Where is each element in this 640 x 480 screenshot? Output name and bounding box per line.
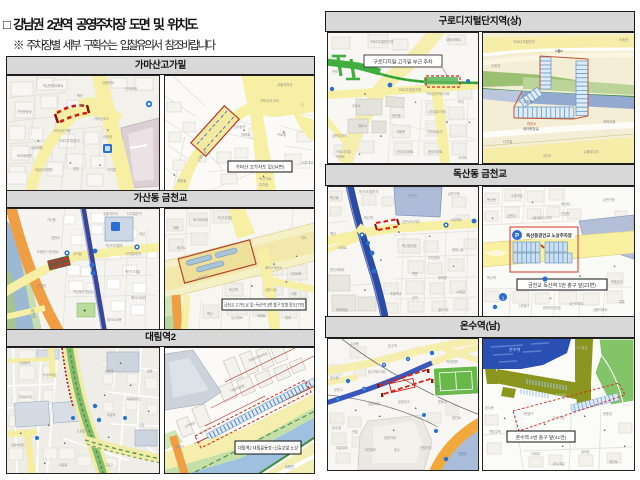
svg-text:주민센터: 주민센터: [428, 255, 440, 260]
svg-text:에이스타워: 에이스타워: [131, 295, 146, 300]
svg-text:그린빌라: 그린빌라: [364, 447, 376, 452]
svg-text:대흥빌라: 대흥빌라: [336, 445, 348, 450]
svg-text:▲: ▲: [583, 414, 586, 418]
svg-text:온수역사거리: 온수역사거리: [368, 369, 386, 374]
svg-text:부천시: 부천시: [334, 387, 343, 392]
svg-text:1: 1: [502, 295, 505, 300]
svg-text:▲: ▲: [129, 383, 132, 387]
svg-text:독산역: 독산역: [229, 287, 238, 292]
svg-text:아파트: 아파트: [338, 245, 347, 250]
svg-text:우성아파트: 우성아파트: [43, 372, 57, 377]
svg-text:■: ■: [380, 258, 382, 262]
svg-text:■: ■: [446, 120, 448, 124]
svg-text:안양천: 안양천: [37, 283, 46, 288]
svg-text:▲: ▲: [623, 444, 626, 448]
svg-text:보성: 보성: [458, 99, 464, 104]
svg-text:하안동: 하안동: [392, 113, 401, 118]
svg-text:구로디지털: 구로디지털: [336, 149, 351, 154]
svg-text:▲: ▲: [414, 406, 417, 410]
svg-text:▲: ▲: [43, 461, 46, 465]
svg-text:독산교: 독산교: [561, 201, 570, 206]
svg-text:수출의다리: 수출의다리: [103, 211, 118, 216]
svg-text:금천교: 금천교: [507, 213, 516, 218]
svg-text:구로디지털단지역: 구로디지털단지역: [370, 39, 394, 44]
svg-text:현대아파트: 현대아파트: [19, 394, 33, 399]
svg-text:신림현대: 신림현대: [102, 80, 114, 85]
svg-text:금천우체국: 금천우체국: [332, 133, 347, 138]
svg-text:벽산: 벽산: [330, 231, 336, 236]
svg-text:가마산오거리: 가마산오거리: [260, 98, 279, 103]
svg-text:▲: ▲: [531, 200, 534, 204]
svg-text:시흥대로사거리: 시흥대로사거리: [531, 215, 552, 220]
svg-text:온수역전: 온수역전: [553, 415, 565, 420]
svg-text:1번출구: 1번출구: [519, 303, 530, 308]
svg-text:도림천: 도림천: [77, 428, 86, 433]
svg-text:▲: ▲: [428, 234, 431, 238]
svg-text:서울가마산: 서울가마산: [277, 82, 293, 87]
svg-text:금천교 독산역 1번 출구 앞(21면): 금천교 독산역 1번 출구 앞(21면): [528, 282, 596, 289]
svg-text:▲: ▲: [491, 216, 494, 220]
svg-text:두산위브: 두산위브: [231, 315, 243, 320]
svg-text:▲: ▲: [452, 264, 455, 268]
svg-text:테크노타운: 테크노타운: [107, 317, 122, 322]
svg-text:성당: 성당: [73, 166, 79, 171]
svg-text:아울렛: 아울렛: [396, 129, 405, 134]
svg-text:✚: ✚: [285, 280, 288, 284]
svg-text:아파트: 아파트: [241, 132, 250, 137]
svg-text:▲: ▲: [47, 423, 50, 427]
svg-text:초등학교: 초등학교: [390, 291, 402, 296]
svg-text:대성: 대성: [139, 231, 145, 236]
svg-text:▲: ▲: [107, 435, 110, 439]
svg-text:▲: ▲: [63, 441, 66, 445]
svg-text:대림동: 대림동: [177, 178, 186, 183]
svg-text:구민운동장: 구민운동장: [17, 109, 32, 114]
svg-text:마을금고: 마을금고: [611, 279, 623, 284]
svg-text:■: ■: [283, 130, 285, 134]
svg-text:수출의다리: 수출의다리: [583, 149, 599, 154]
svg-text:구로디지털 고가밑 부근 주차: 구로디지털 고가밑 부근 주차: [373, 59, 433, 66]
svg-text:도림천: 도림천: [285, 464, 294, 469]
svg-text:빌라촌: 빌라촌: [581, 449, 590, 454]
svg-text:체육공원: 체육공원: [603, 119, 615, 124]
svg-text:주차장: 주차장: [259, 182, 268, 187]
svg-text:관리소: 관리소: [527, 121, 536, 126]
svg-text:대림동: 대림동: [59, 462, 68, 467]
svg-text:신세계: 신세계: [103, 134, 112, 139]
svg-text:극동: 극동: [291, 292, 297, 296]
svg-text:두산아파트: 두산아파트: [569, 301, 584, 306]
svg-text:▲: ▲: [392, 428, 395, 432]
svg-text:가산동주민센터: 가산동주민센터: [73, 289, 94, 294]
svg-text:온수골길: 온수골길: [553, 461, 565, 466]
svg-text:▲: ▲: [358, 152, 361, 156]
svg-text:■: ■: [579, 274, 581, 278]
svg-text:시장길: 시장길: [456, 289, 465, 294]
svg-text:벽산: 벽산: [207, 311, 213, 316]
svg-text:독산동: 독산동: [487, 197, 496, 202]
svg-text:테크노: 테크노: [177, 245, 186, 250]
svg-text:온수역 2번 출구 앞(41면): 온수역 2번 출구 앞(41면): [516, 434, 567, 441]
svg-text:1·7호선: 1·7호선: [577, 345, 588, 350]
svg-text:▲: ▲: [295, 254, 298, 258]
svg-text:성공회대: 성공회대: [368, 401, 380, 406]
svg-text:연립: 연립: [352, 429, 358, 434]
svg-text:■: ■: [364, 288, 366, 292]
svg-text:금천교: 금천교: [51, 235, 60, 240]
svg-text:삼풍아파트: 삼풍아파트: [593, 307, 608, 312]
svg-text:3단지: 3단지: [543, 153, 551, 158]
svg-text:■: ■: [380, 134, 382, 138]
svg-text:삼익: 삼익: [412, 295, 418, 300]
svg-text:가산동: 가산동: [47, 217, 56, 222]
svg-text:■: ■: [251, 284, 253, 288]
svg-text:온수동: 온수동: [330, 375, 339, 380]
svg-text:아파트: 아파트: [336, 154, 345, 159]
svg-text:▲: ▲: [262, 174, 265, 178]
svg-text:디지털: 디지털: [107, 167, 116, 172]
svg-text:도림천: 도림천: [619, 37, 628, 42]
svg-text:▲: ▲: [561, 444, 564, 448]
svg-text:독산역: 독산역: [487, 275, 496, 280]
svg-text:▲: ▲: [414, 100, 417, 104]
svg-text:백운: 백운: [412, 271, 418, 276]
svg-text:온수역: 온수역: [388, 343, 397, 348]
svg-text:▲: ▲: [543, 422, 546, 426]
svg-text:운동장: 운동장: [438, 399, 447, 404]
svg-text:현대: 현대: [285, 315, 291, 320]
svg-text:온수동: 온수동: [485, 405, 494, 410]
svg-text:▲: ▲: [503, 416, 506, 420]
svg-text:온수골: 온수골: [332, 425, 341, 430]
svg-text:▲: ▲: [119, 361, 122, 365]
svg-text:롯데캐슬: 롯데캐슬: [336, 307, 348, 312]
svg-text:관악현대: 관악현대: [125, 86, 137, 91]
svg-text:포스트타워: 포스트타워: [193, 217, 208, 222]
svg-text:P: P: [515, 234, 519, 240]
svg-text:구로구: 구로구: [105, 463, 114, 467]
svg-text:온수역: 온수역: [509, 346, 520, 352]
svg-text:현대지식산업: 현대지식산업: [543, 305, 561, 310]
svg-text:대륭: 대륭: [173, 225, 179, 230]
svg-text:■: ■: [398, 230, 400, 234]
svg-text:▲: ▲: [613, 264, 616, 268]
svg-text:디지털단지: 디지털단지: [127, 211, 142, 216]
svg-text:유한양행: 유한양행: [31, 145, 43, 150]
svg-text:구로디지털단지: 구로디지털단지: [513, 39, 535, 44]
svg-text:마산현대아파트: 마산현대아파트: [43, 83, 64, 88]
svg-text:신대방역: 신대방역: [19, 360, 30, 365]
svg-text:대림아파트: 대림아파트: [127, 396, 141, 401]
svg-text:금천교 고가도로 밑~독산역 3번 출구 방향 편도(7면): 금천교 고가도로 밑~독산역 3번 출구 방향 편도(7면): [224, 302, 304, 309]
svg-text:가산디지털역: 가산디지털역: [105, 243, 123, 248]
svg-text:남문시장: 남문시장: [265, 287, 277, 292]
svg-text:구로동: 구로동: [277, 133, 286, 137]
svg-text:수출의길: 수출의길: [511, 193, 523, 198]
svg-text:디지털3단지: 디지털3단지: [125, 251, 142, 256]
svg-text:시흥대로: 시흥대로: [301, 160, 313, 165]
svg-text:가마산 고가차도 밑(34면): 가마산 고가차도 밑(34면): [236, 164, 285, 171]
svg-text:■: ■: [364, 92, 366, 96]
svg-text:디지털오거리: 디지털오거리: [428, 109, 446, 114]
svg-text:쉼터화장실: 쉼터화장실: [523, 126, 539, 131]
svg-text:안양천: 안양천: [458, 451, 467, 456]
svg-text:보라매: 보라매: [105, 368, 114, 373]
svg-text:대림역2 대림운동장~신길교앞 노상: 대림역2 대림운동장~신길교앞 노상: [238, 445, 299, 452]
svg-text:성원아파트: 성원아파트: [11, 442, 25, 447]
svg-text:다세대: 다세대: [531, 451, 540, 456]
svg-text:구로디지털단지역: 구로디지털단지역: [398, 87, 422, 92]
svg-text:역곡방면: 역곡방면: [446, 359, 458, 364]
svg-text:■: ■: [107, 128, 109, 132]
svg-text:▲: ▲: [103, 393, 106, 397]
svg-text:주유소: 주유소: [352, 103, 361, 108]
svg-text:2번출구: 2번출구: [523, 411, 534, 416]
svg-text:가산디지털단지: 가산디지털단지: [358, 189, 379, 194]
svg-text:▲: ▲: [468, 120, 471, 124]
svg-text:주차장: 주차장: [523, 99, 532, 104]
svg-text:경인로: 경인로: [609, 459, 618, 464]
svg-text:✚: ✚: [173, 173, 176, 177]
svg-text:구로공단역사거리: 구로공단역사거리: [426, 91, 450, 96]
svg-text:가마산고가: 가마산고가: [94, 116, 109, 121]
svg-text:벽산: 벽산: [77, 93, 83, 98]
svg-text:금천구청: 금천구청: [603, 197, 615, 202]
svg-text:관악: 관악: [332, 69, 338, 74]
svg-text:산업단지: 산업단지: [420, 445, 432, 450]
svg-text:수궁동: 수궁동: [350, 341, 359, 346]
svg-text:한신아파트: 한신아파트: [330, 267, 345, 272]
svg-text:독산동: 독산동: [330, 195, 339, 200]
svg-text:독산동광안교 노상주차장: 독산동광안교 노상주차장: [526, 232, 572, 239]
svg-text:▲: ▲: [19, 431, 22, 435]
svg-text:월드: 월드: [301, 235, 307, 240]
svg-text:경인로: 경인로: [452, 415, 461, 420]
svg-text:가마산오거리: 가마산오거리: [53, 128, 71, 133]
svg-text:신미주아파트: 신미주아파트: [396, 149, 414, 154]
svg-text:현대시장: 현대시장: [452, 247, 464, 252]
svg-text:연립주택: 연립주택: [489, 429, 501, 434]
svg-text:유한공고: 유한공고: [398, 399, 410, 404]
svg-text:교각밑: 교각밑: [73, 251, 82, 256]
svg-text:한성아파트: 한성아파트: [428, 149, 443, 154]
svg-text:▲: ▲: [603, 428, 606, 432]
svg-text:안양천: 안양천: [561, 211, 570, 216]
svg-text:▲: ▲: [549, 296, 552, 300]
svg-text:금천구청: 금천구청: [448, 191, 460, 196]
svg-text:골드1차: 골드1차: [438, 307, 449, 312]
svg-text:대료소: 대료소: [358, 123, 367, 128]
svg-text:유통: 유통: [619, 299, 625, 304]
svg-text:벽산디지털: 벽산디지털: [125, 269, 140, 274]
svg-text:대림아파트: 대림아파트: [446, 37, 461, 42]
svg-text:공장지대: 공장지대: [384, 435, 396, 440]
svg-text:독산가로: 독산가로: [259, 176, 271, 181]
svg-text:타워8차: 타워8차: [291, 271, 302, 276]
svg-text:신림천: 신림천: [491, 63, 500, 68]
svg-text:▲: ▲: [436, 384, 439, 388]
svg-text:가산디지털: 가산디지털: [217, 215, 232, 220]
svg-text:▲: ▲: [378, 414, 381, 418]
svg-text:■: ■: [273, 262, 275, 266]
svg-text:보라매공원: 보라매공원: [17, 153, 32, 158]
svg-text:독산동성당: 독산동성당: [402, 243, 417, 248]
svg-text:금천교사거리: 금천교사거리: [402, 219, 420, 224]
svg-text:B: B: [383, 363, 385, 367]
svg-text:시흥대로: 시흥대로: [450, 217, 462, 222]
svg-text:독산역: 독산역: [364, 215, 373, 220]
svg-text:온수: 온수: [394, 447, 400, 452]
svg-text:동작구: 동작구: [175, 444, 184, 449]
svg-text:도림천-가산대교: 도림천-가산대교: [37, 249, 59, 254]
svg-text:■: ■: [243, 128, 245, 132]
svg-text:주차장: 주차장: [555, 392, 566, 398]
svg-text:디지털: 디지털: [503, 139, 512, 144]
svg-text:대림성모병원: 대림성모병원: [35, 167, 53, 172]
svg-text:▲: ▲: [133, 451, 136, 455]
svg-text:■: ■: [99, 163, 101, 167]
svg-text:대림역: 대림역: [107, 412, 116, 417]
svg-text:구로디지털단지: 구로디지털단지: [59, 138, 80, 143]
svg-text:공원: 공원: [147, 368, 153, 373]
svg-text:사거리: 사거리: [458, 155, 467, 160]
svg-text:안양천: 안양천: [408, 193, 417, 198]
svg-text:문화원: 문화원: [438, 275, 447, 280]
svg-text:신길: 신길: [139, 422, 145, 427]
svg-text:■: ■: [80, 103, 82, 107]
svg-text:▲: ▲: [354, 408, 357, 412]
svg-text:G: G: [301, 103, 304, 107]
svg-text:단지내상가: 단지내상가: [428, 129, 443, 134]
svg-text:▲: ▲: [147, 409, 150, 413]
svg-text:운동장: 운동장: [603, 411, 612, 416]
svg-text:아파트: 아파트: [257, 313, 266, 318]
